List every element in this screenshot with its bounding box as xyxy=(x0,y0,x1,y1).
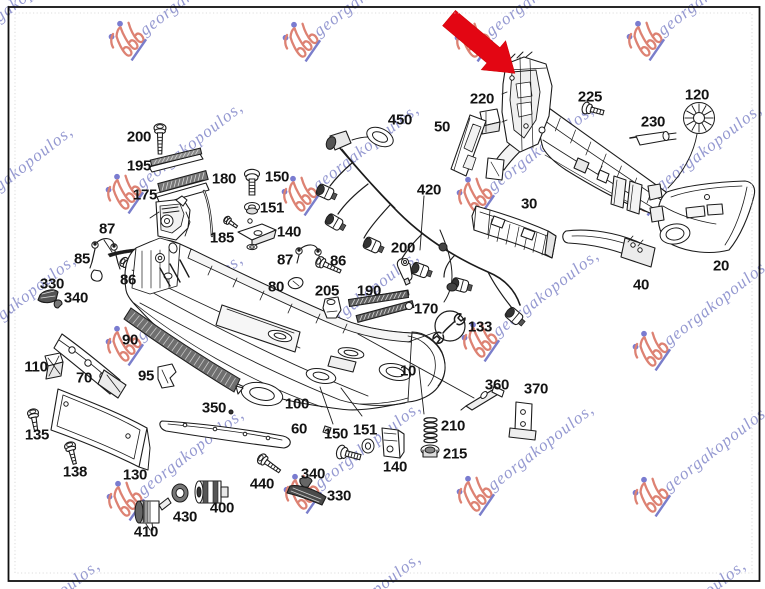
svg-text:80: 80 xyxy=(268,279,284,296)
svg-text:180: 180 xyxy=(212,171,236,188)
svg-text:151: 151 xyxy=(260,200,284,217)
svg-text:330: 330 xyxy=(40,276,64,293)
svg-text:70: 70 xyxy=(76,370,92,387)
svg-text:185: 185 xyxy=(210,230,234,247)
svg-text:340: 340 xyxy=(301,466,325,483)
svg-text:200: 200 xyxy=(127,129,151,146)
svg-text:440: 440 xyxy=(250,476,274,493)
svg-text:370: 370 xyxy=(524,381,548,398)
svg-text:150: 150 xyxy=(324,426,348,443)
svg-text:330: 330 xyxy=(327,488,351,505)
svg-text:220: 220 xyxy=(470,91,494,108)
svg-text:120: 120 xyxy=(685,87,709,104)
svg-text:195: 195 xyxy=(127,158,151,175)
svg-text:190: 190 xyxy=(357,283,381,300)
svg-text:400: 400 xyxy=(210,500,234,517)
svg-text:86: 86 xyxy=(330,253,346,270)
svg-text:430: 430 xyxy=(173,509,197,526)
svg-text:200: 200 xyxy=(391,240,415,257)
svg-text:420: 420 xyxy=(417,182,441,199)
svg-text:150: 150 xyxy=(265,169,289,186)
svg-text:140: 140 xyxy=(277,224,301,241)
svg-text:230: 230 xyxy=(641,114,665,131)
svg-text:340: 340 xyxy=(64,290,88,307)
svg-text:151: 151 xyxy=(353,422,377,439)
svg-text:360: 360 xyxy=(485,377,509,394)
svg-text:175: 175 xyxy=(133,187,157,204)
svg-text:350: 350 xyxy=(202,400,226,417)
svg-text:140: 140 xyxy=(383,459,407,476)
svg-text:40: 40 xyxy=(633,277,649,294)
svg-text:205: 205 xyxy=(315,283,339,300)
svg-text:130: 130 xyxy=(123,467,147,484)
svg-text:87: 87 xyxy=(277,252,293,269)
svg-text:225: 225 xyxy=(578,89,602,106)
svg-text:50: 50 xyxy=(434,119,450,136)
svg-text:30: 30 xyxy=(521,196,537,213)
svg-text:20: 20 xyxy=(713,258,729,275)
svg-text:86: 86 xyxy=(120,272,136,289)
svg-text:138: 138 xyxy=(63,464,87,481)
svg-text:450: 450 xyxy=(388,112,412,129)
svg-text:110: 110 xyxy=(24,359,47,376)
svg-text:85: 85 xyxy=(74,251,90,268)
svg-text:90: 90 xyxy=(122,332,138,349)
svg-text:10: 10 xyxy=(400,363,416,380)
svg-text:60: 60 xyxy=(291,421,307,438)
svg-text:410: 410 xyxy=(134,524,158,541)
svg-text:87: 87 xyxy=(99,221,115,238)
svg-text:95: 95 xyxy=(138,368,154,385)
svg-text:100: 100 xyxy=(285,396,309,413)
svg-text:135: 135 xyxy=(25,427,49,444)
svg-text:133: 133 xyxy=(468,319,492,336)
svg-text:170: 170 xyxy=(414,301,438,318)
svg-text:215: 215 xyxy=(443,446,467,463)
svg-text:210: 210 xyxy=(441,418,465,435)
